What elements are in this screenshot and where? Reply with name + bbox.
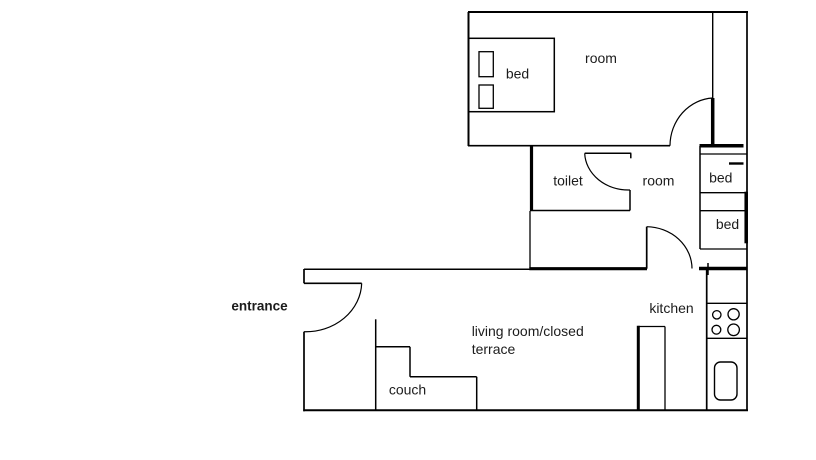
label-toilet: toilet [553, 173, 583, 189]
burner-large-top [728, 309, 739, 320]
pillow-1 [479, 52, 493, 77]
hall-door-arc [647, 227, 692, 269]
floorplan-canvas: bedroomtoiletroombedbedentrancekitchenli… [0, 0, 816, 460]
label-room-top: room [585, 50, 617, 66]
burner-small-bottom [712, 325, 721, 334]
entrance-door-arc [304, 283, 362, 331]
label-bed-main: bed [506, 66, 529, 82]
label-bed-1: bed [709, 170, 732, 186]
label-couch: couch [389, 382, 426, 398]
burner-small-top [713, 311, 721, 319]
label-room-hall: room [643, 173, 675, 189]
sink-basin [715, 362, 738, 400]
label-living-line1: living room/closed [472, 323, 584, 339]
label-living-line2: terrace [472, 341, 516, 357]
floorplan-drawing: bedroomtoiletroombedbedentrancekitchenli… [0, 0, 816, 460]
label-kitchen: kitchen [649, 300, 693, 316]
label-bed-2: bed [716, 216, 739, 232]
burner-large-bottom [728, 324, 740, 336]
label-entrance: entrance [231, 299, 288, 314]
toilet-door-arc [585, 153, 630, 190]
pillow-2 [479, 85, 493, 108]
bedroom-door-arc [670, 98, 713, 146]
